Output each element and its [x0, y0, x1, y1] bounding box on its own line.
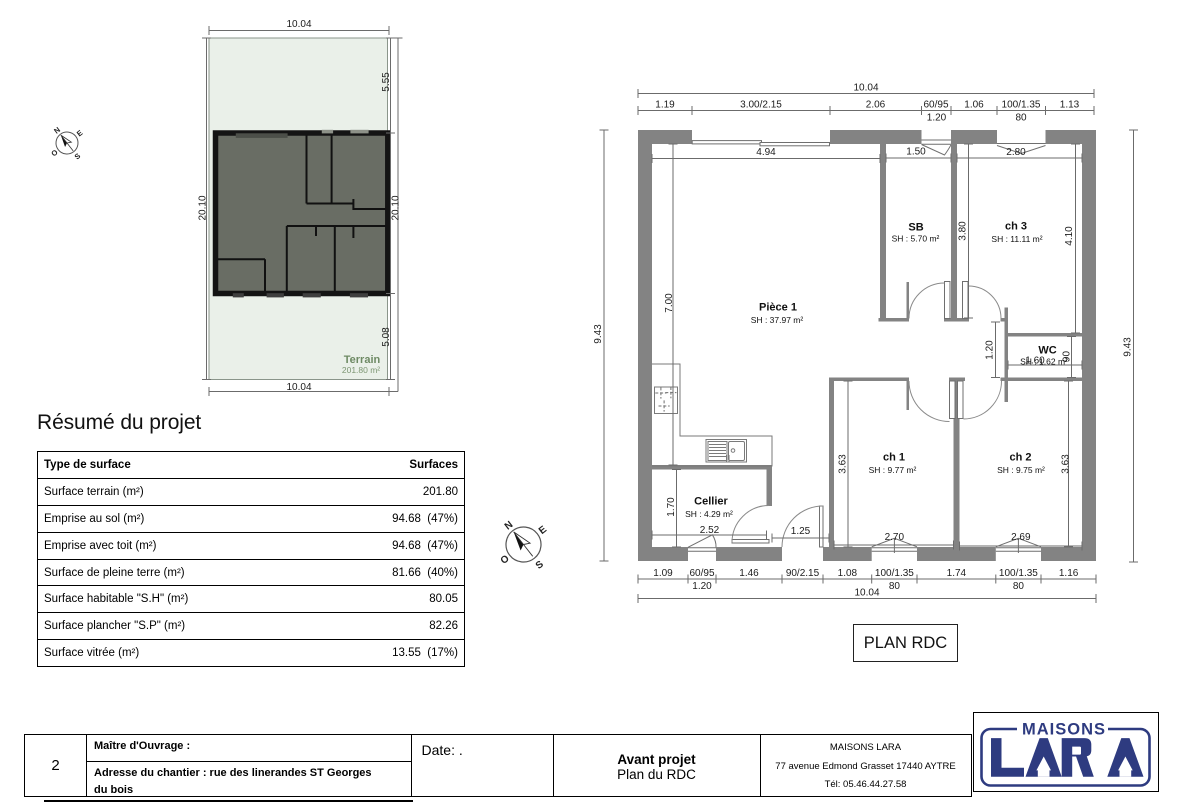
svg-text:1.20: 1.20: [927, 113, 947, 124]
svg-text:2.69: 2.69: [1011, 532, 1031, 543]
svg-text:SH : 9.75 m²: SH : 9.75 m²: [997, 465, 1045, 475]
svg-text:2.06: 2.06: [866, 100, 886, 111]
svg-text:WC: WC: [1038, 345, 1056, 357]
svg-text:SH : 37.97 m²: SH : 37.97 m²: [751, 315, 804, 325]
svg-text:10.04: 10.04: [286, 19, 311, 30]
svg-text:SH : 4.29 m²: SH : 4.29 m²: [685, 509, 733, 519]
svg-text:10.04: 10.04: [286, 382, 311, 393]
svg-text:1.09: 1.09: [653, 568, 673, 579]
svg-text:7.00: 7.00: [664, 293, 675, 313]
svg-text:1.19: 1.19: [655, 100, 675, 111]
svg-text:SH : 9.77 m²: SH : 9.77 m²: [869, 465, 917, 475]
svg-text:ch 3: ch 3: [1005, 221, 1027, 233]
svg-text:2.52: 2.52: [700, 525, 720, 536]
svg-text:20.10: 20.10: [198, 195, 209, 220]
svg-text:3.63: 3.63: [1061, 454, 1072, 474]
svg-text:1.13: 1.13: [1060, 100, 1080, 111]
svg-text:100/1.35: 100/1.35: [999, 568, 1038, 579]
svg-text:100/1.35: 100/1.35: [1002, 100, 1041, 111]
svg-text:10.04: 10.04: [854, 588, 879, 599]
svg-text:ch 2: ch 2: [1009, 452, 1031, 464]
svg-text:Cellier: Cellier: [694, 496, 728, 508]
svg-text:1.50: 1.50: [906, 147, 926, 158]
svg-text:5.08: 5.08: [381, 327, 392, 347]
svg-text:20.10: 20.10: [391, 195, 402, 220]
svg-text:100/1.35: 100/1.35: [875, 568, 914, 579]
svg-text:60/95: 60/95: [689, 568, 714, 579]
svg-text:S: S: [73, 151, 82, 161]
svg-text:SB: SB: [908, 222, 923, 234]
svg-text:201.80 m²: 201.80 m²: [342, 365, 380, 375]
svg-text:1.20: 1.20: [692, 581, 712, 592]
svg-text:60/95: 60/95: [923, 100, 948, 111]
svg-text:9.43: 9.43: [593, 324, 604, 344]
svg-text:1.74: 1.74: [947, 568, 967, 579]
svg-text:1.25: 1.25: [791, 526, 811, 537]
svg-text:80: 80: [1015, 113, 1027, 124]
svg-text:1.20: 1.20: [985, 340, 996, 360]
svg-text:4.94: 4.94: [756, 147, 776, 158]
svg-text:SH : 11.11 m²: SH : 11.11 m²: [991, 234, 1042, 244]
svg-text:SH : 5.70 m²: SH : 5.70 m²: [892, 234, 940, 244]
svg-text:3.80: 3.80: [958, 221, 969, 241]
svg-text:S: S: [534, 559, 546, 572]
svg-text:4.10: 4.10: [1064, 226, 1075, 246]
svg-text:80: 80: [1013, 581, 1025, 592]
svg-text:2.80: 2.80: [1006, 147, 1026, 158]
svg-text:SH : 1.62 m²: SH : 1.62 m²: [1020, 357, 1068, 367]
svg-text:9.43: 9.43: [1123, 337, 1134, 357]
svg-text:5.55: 5.55: [381, 72, 392, 92]
svg-text:90/2.15: 90/2.15: [786, 568, 820, 579]
svg-text:1.08: 1.08: [838, 568, 858, 579]
svg-text:ch 1: ch 1: [883, 452, 905, 464]
svg-text:1.70: 1.70: [666, 497, 677, 517]
svg-text:Pièce 1: Pièce 1: [759, 302, 797, 314]
svg-text:3.00/2.15: 3.00/2.15: [740, 100, 782, 111]
svg-text:1.06: 1.06: [964, 100, 984, 111]
svg-text:1.46: 1.46: [739, 568, 759, 579]
svg-text:10.04: 10.04: [853, 83, 878, 94]
svg-text:2.70: 2.70: [885, 532, 905, 543]
svg-text:3.63: 3.63: [838, 454, 849, 474]
svg-text:1.16: 1.16: [1059, 568, 1079, 579]
svg-text:80: 80: [889, 581, 901, 592]
